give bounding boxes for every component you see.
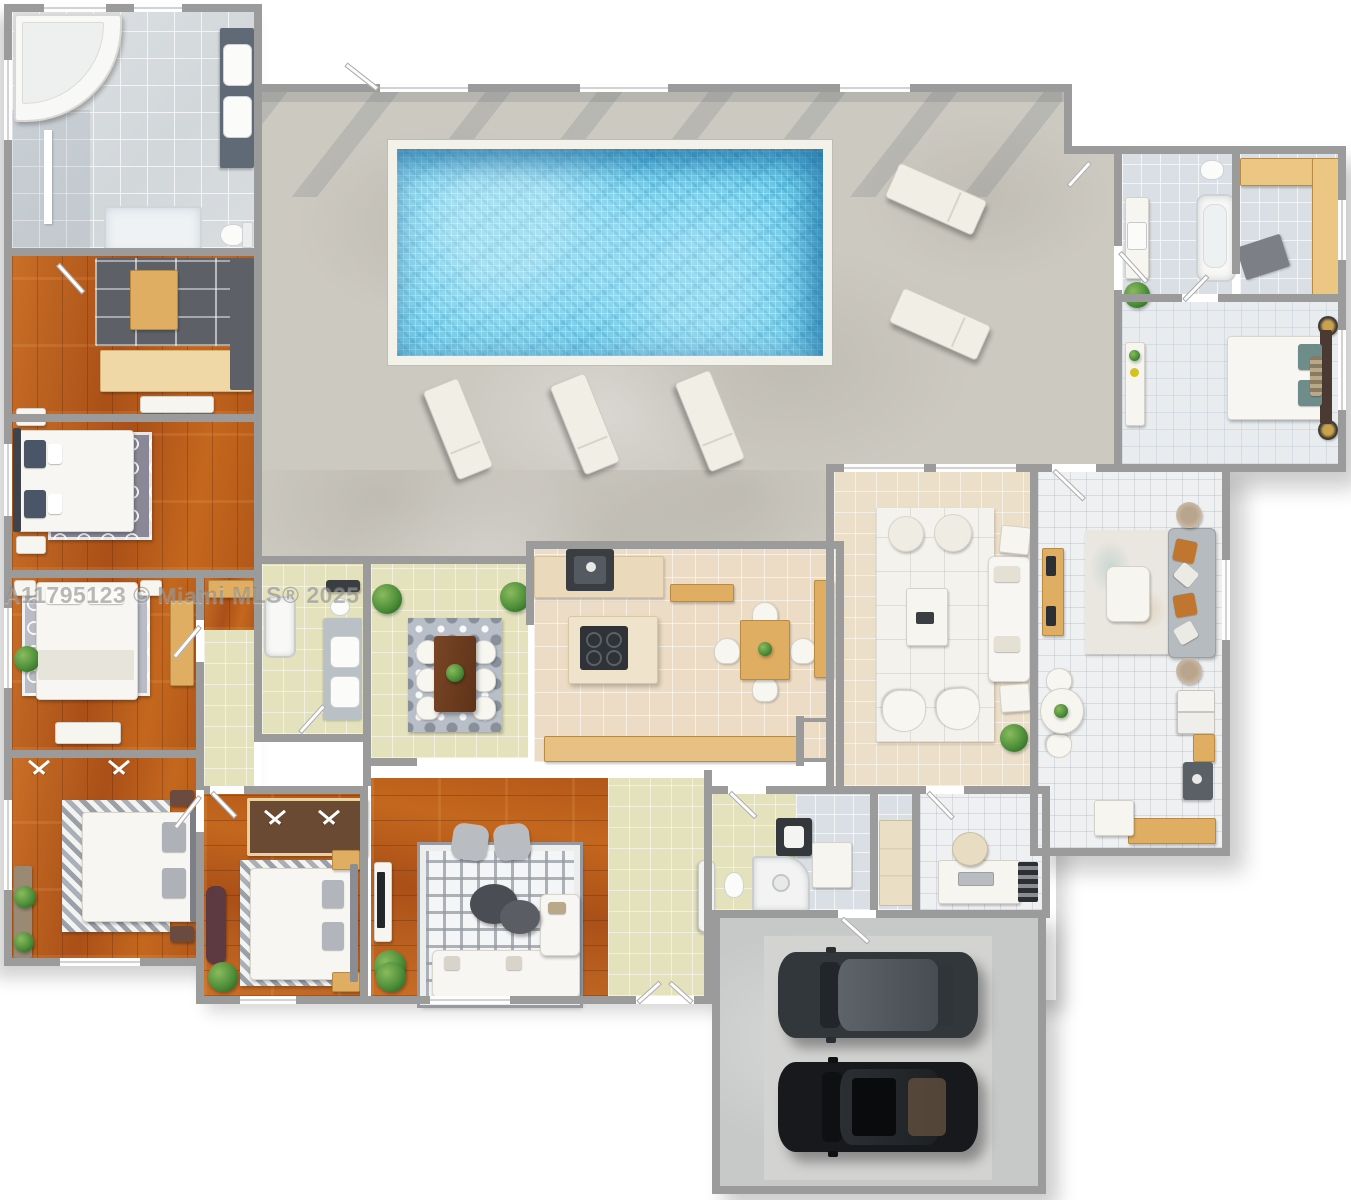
master-bed-pillow-white: [48, 494, 62, 514]
floor-plan: A11795123 © Miami MLS® 2025: [0, 0, 1351, 1200]
wall: [254, 734, 371, 742]
wall: [1230, 464, 1346, 472]
sliding-door: [936, 464, 1016, 472]
bedroom-4-dresser: [206, 886, 226, 964]
wall: [1222, 464, 1230, 856]
office-shelves: [1018, 862, 1038, 902]
wall: [363, 758, 417, 766]
window: [60, 958, 140, 966]
side-table: [999, 683, 1031, 713]
window: [4, 60, 12, 140]
round-pouf: [934, 514, 972, 552]
car-sedan-gray: [778, 952, 978, 1038]
sofa-pillow: [994, 636, 1020, 652]
car-windshield: [820, 962, 840, 1028]
cooktop-burner: [606, 632, 622, 648]
car-mirror: [826, 1037, 836, 1043]
bedroom-dresser: [140, 396, 214, 413]
car-mirror: [828, 1057, 838, 1063]
wall: [360, 786, 368, 1004]
wall: [870, 794, 878, 912]
office-chair: [952, 832, 988, 866]
potted-plant: [14, 886, 36, 908]
wall: [912, 794, 920, 912]
wall: [1232, 150, 1240, 274]
car-mirror: [828, 1151, 838, 1157]
master-bed-headboard: [13, 428, 21, 532]
table-plant: [1054, 704, 1068, 718]
wall: [4, 570, 262, 578]
cooktop-burner: [606, 650, 622, 666]
window: [134, 4, 182, 12]
window: [1222, 560, 1230, 640]
potted-plant: [1000, 724, 1028, 752]
toilet-tank: [242, 222, 253, 248]
utility-cabinets: [879, 820, 913, 906]
closet-wardrobe-right: [1312, 158, 1340, 298]
window: [430, 996, 510, 1004]
bath-cabinet: [812, 842, 852, 888]
round-pouf: [888, 516, 924, 552]
wall: [1030, 848, 1230, 856]
window: [1338, 330, 1346, 410]
wall: [1114, 146, 1346, 154]
cooktop-burner: [586, 632, 602, 648]
console-decor-dot: [1130, 368, 1139, 377]
window: [240, 996, 296, 1004]
sliding-door: [580, 84, 668, 92]
potted-plant: [14, 932, 34, 952]
suite-sink: [1127, 222, 1147, 250]
bath-sink: [223, 96, 252, 138]
bedroom-2-dresser: [55, 722, 121, 744]
sofa-pillow: [994, 566, 1020, 582]
wall: [712, 910, 720, 1194]
in-law-cabinet: [1193, 734, 1215, 762]
car-roof: [838, 959, 940, 1031]
cabana-sink: [330, 676, 360, 708]
deck-wall-shade: [262, 92, 1114, 102]
in-law-bottom-counter: [1128, 818, 1216, 844]
suite-toilet: [1200, 160, 1224, 180]
car-windshield: [822, 1072, 842, 1142]
wall: [526, 549, 534, 625]
side-table: [999, 525, 1032, 556]
car-sedan-black: [778, 1062, 978, 1152]
coffee-table-round: [500, 900, 540, 934]
ottoman-pouf: [450, 822, 491, 863]
breakfast-chair: [790, 638, 816, 664]
wall: [712, 910, 1046, 918]
bedroom-4-pillow: [322, 880, 344, 908]
nightstand: [170, 926, 194, 942]
console-plant: [1129, 350, 1140, 361]
master-bed-pillow: [24, 440, 46, 468]
window: [4, 800, 12, 890]
round-side-table: [1176, 502, 1202, 528]
tv-screen: [377, 872, 385, 928]
wall: [1338, 146, 1346, 472]
wall: [4, 750, 204, 758]
glass-partition: [44, 130, 52, 224]
wall: [363, 556, 371, 786]
sofa-pillow: [444, 956, 460, 970]
exterior-white-patch: [1072, 92, 1116, 146]
closet-bifold-door: [102, 762, 136, 778]
window: [1338, 200, 1346, 260]
wall: [1064, 146, 1122, 154]
round-side-table: [1176, 658, 1202, 684]
car-rear-window: [938, 964, 954, 1026]
hall-bath-sink: [784, 826, 804, 848]
wall: [704, 770, 712, 1004]
wall: [712, 1186, 1046, 1194]
wall: [826, 464, 834, 794]
wall: [1118, 294, 1346, 302]
wall: [1030, 464, 1038, 856]
accent-pillow: [1310, 356, 1322, 396]
orange-pillow: [1172, 592, 1197, 617]
wall: [4, 414, 262, 422]
car-mirror: [826, 947, 836, 953]
bedroom-4-pillow: [322, 922, 344, 950]
wall: [1038, 910, 1046, 1194]
desk-monitor: [958, 872, 994, 886]
in-law-dining-chair: [1046, 734, 1072, 758]
window: [4, 608, 12, 688]
orange-pillow: [1172, 538, 1198, 564]
wall: [796, 716, 804, 766]
shower-drain: [772, 874, 790, 892]
master-bed-pillow-white: [48, 444, 62, 464]
in-law-table: [1094, 800, 1134, 836]
table-centerpiece: [446, 664, 464, 682]
closet-bifold-door: [22, 762, 56, 778]
wall: [254, 556, 371, 564]
wall: [526, 541, 844, 549]
car-sunroof: [852, 1078, 896, 1136]
nightstand: [16, 536, 46, 554]
in-law-fridge: [1177, 690, 1215, 734]
potted-plant: [372, 584, 402, 614]
bedroom-2-blanket: [38, 650, 134, 680]
wall: [4, 248, 262, 256]
console-speaker: [1046, 556, 1056, 576]
foyer: [608, 778, 704, 996]
swimming-pool: [388, 140, 832, 365]
cabana-sink: [330, 636, 360, 668]
bath-sink: [223, 44, 252, 86]
in-law-coffee-table: [1106, 566, 1150, 622]
in-law-faucet: [1192, 774, 1202, 784]
closet-cabinet-right: [230, 258, 254, 390]
master-bed-pillow: [24, 490, 46, 518]
sliding-door: [840, 84, 910, 92]
mls-watermark: A11795123 © Miami MLS® 2025: [4, 582, 360, 609]
suite-bathtub-basin: [1203, 204, 1227, 268]
car-rear-window: [908, 1078, 946, 1136]
kitchen-shelf: [670, 584, 734, 602]
coffee-table-decor: [916, 612, 934, 624]
bedroom-3-pillow: [162, 868, 186, 898]
wardrobe-hanger-mark: [312, 812, 346, 828]
closet-wood-shelf: [130, 270, 178, 330]
potted-plant: [208, 962, 238, 992]
hall-bath-toilet: [724, 872, 744, 898]
bedroom-4-headboard: [350, 864, 358, 982]
wall: [1114, 146, 1122, 472]
potted-plant: [376, 962, 406, 992]
wall: [4, 4, 262, 12]
potted-plant: [14, 646, 40, 672]
breakfast-chair: [714, 638, 740, 664]
wall: [363, 556, 534, 564]
sofa-pillow: [548, 902, 566, 914]
wall: [1064, 84, 1072, 154]
kitchen-faucet: [586, 562, 596, 572]
console-speaker: [1046, 606, 1056, 626]
sliding-door: [844, 464, 924, 472]
kitchen-bench: [544, 736, 798, 762]
window: [4, 444, 12, 516]
sofa-pillow: [506, 956, 522, 970]
table-plant: [758, 642, 772, 656]
ottoman-pouf: [492, 822, 532, 862]
toilet: [220, 224, 244, 246]
cooktop-burner: [586, 650, 602, 666]
wall: [836, 541, 844, 790]
wardrobe-hanger-mark: [258, 812, 292, 828]
sliding-door: [380, 84, 468, 92]
window: [44, 4, 106, 12]
